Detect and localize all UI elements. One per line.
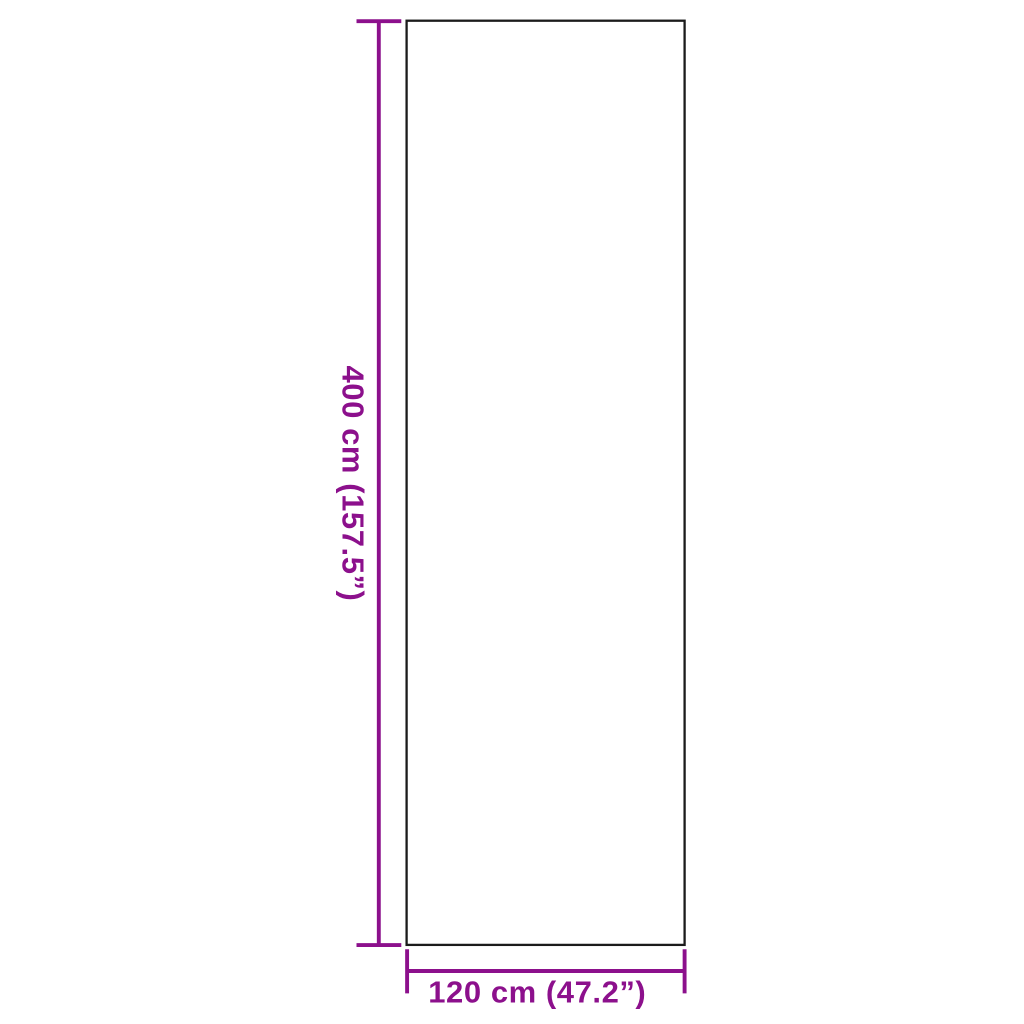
svg-text:120 cm (47.2”): 120 cm (47.2”) bbox=[428, 974, 646, 1009]
svg-text:400 cm (157.5”): 400 cm (157.5”) bbox=[336, 366, 371, 601]
